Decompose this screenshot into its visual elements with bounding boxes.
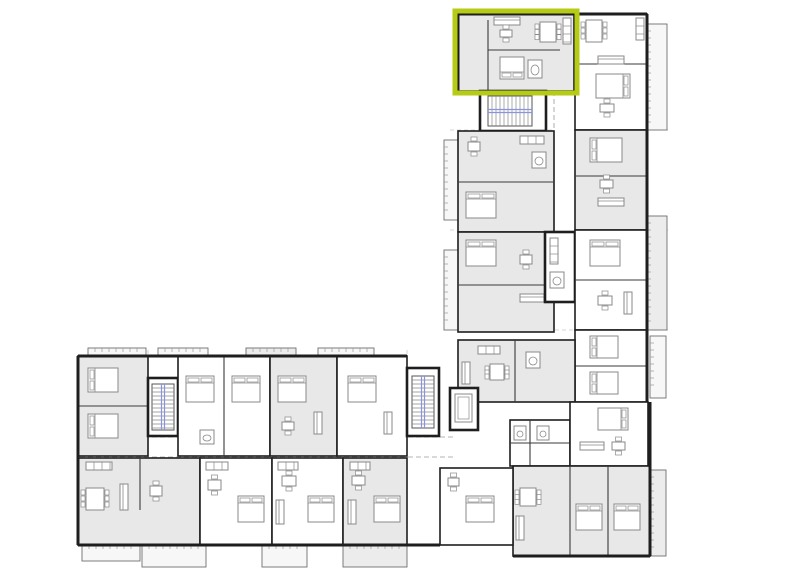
bed-symbol xyxy=(466,496,494,522)
stairs-symbol xyxy=(488,96,532,126)
balcony xyxy=(647,216,667,330)
kitchen-symbol xyxy=(278,462,298,470)
sofa-symbol xyxy=(314,412,322,434)
unit-junction-core[interactable] xyxy=(510,420,570,466)
bath-symbol xyxy=(537,426,549,440)
bed-symbol xyxy=(596,74,630,98)
dining-symbol xyxy=(581,20,607,42)
bed-symbol xyxy=(614,504,640,530)
unit-v-right-2[interactable] xyxy=(575,130,647,230)
core-stair-core-b xyxy=(407,368,439,436)
kitchen-symbol xyxy=(636,18,644,40)
unit-v-left-1[interactable] xyxy=(458,131,554,232)
stairs-symbol xyxy=(152,384,174,430)
balcony xyxy=(343,545,407,567)
bed-symbol xyxy=(466,192,496,218)
unit-bw-top-1[interactable] xyxy=(178,356,270,456)
kitchen-symbol xyxy=(206,462,228,470)
sofa-symbol xyxy=(494,17,520,25)
kitchen-symbol xyxy=(350,462,370,470)
bath-symbol xyxy=(528,60,542,78)
bath-symbol xyxy=(200,430,214,444)
bed-symbol xyxy=(598,408,628,430)
core-elevator-core xyxy=(450,388,478,430)
stairs-symbol xyxy=(412,376,434,428)
corridor xyxy=(554,91,575,232)
bed-symbol xyxy=(238,496,264,522)
unit-junction-right[interactable] xyxy=(513,466,650,556)
bath-symbol xyxy=(526,352,540,368)
unit-bw-bot-2[interactable] xyxy=(272,458,343,545)
sofa-symbol xyxy=(384,412,392,434)
floor-plan xyxy=(0,0,800,575)
dining-symbol xyxy=(535,22,561,42)
sofa-symbol xyxy=(624,292,632,314)
sofa-symbol xyxy=(580,442,604,450)
bath-symbol xyxy=(532,152,546,168)
balcony xyxy=(444,250,458,330)
unit-v-right-4[interactable] xyxy=(575,330,647,402)
sofa-symbol xyxy=(276,500,284,524)
kitchen-symbol xyxy=(550,238,558,264)
core-stair-core-a xyxy=(148,378,178,436)
dining-symbol xyxy=(485,364,509,380)
unit-bw-top-3[interactable] xyxy=(337,356,407,456)
core-core-mid xyxy=(545,232,575,302)
bath-symbol xyxy=(514,426,526,440)
unit-v-right-3[interactable] xyxy=(575,230,647,330)
bed-symbol xyxy=(88,368,118,392)
bed-symbol xyxy=(232,376,260,402)
kitchen-symbol xyxy=(478,346,500,354)
balcony xyxy=(650,470,666,556)
bed-symbol xyxy=(590,372,618,394)
unit-junction-topright[interactable] xyxy=(570,402,648,466)
balcony xyxy=(444,140,458,220)
bed-symbol xyxy=(466,240,496,266)
elevator-symbol xyxy=(455,394,472,422)
unit-bw-bot-3[interactable] xyxy=(343,458,407,545)
sofa-symbol xyxy=(348,500,356,524)
unit-v-left-2[interactable] xyxy=(458,232,554,332)
bed-symbol xyxy=(500,57,524,79)
bath-symbol xyxy=(550,272,564,288)
floor-plan-page xyxy=(0,0,800,575)
balcony xyxy=(647,24,667,130)
unit-bw-bot-corner[interactable] xyxy=(78,458,200,545)
sofa-symbol xyxy=(120,484,128,510)
unit-bw-top-2[interactable] xyxy=(270,356,337,456)
sofa-symbol xyxy=(598,56,624,64)
bed-symbol xyxy=(590,240,620,266)
sofa-symbol xyxy=(516,516,524,540)
bed-symbol xyxy=(348,376,376,402)
bed-symbol xyxy=(88,414,118,438)
unit-bw-top-corner[interactable] xyxy=(78,356,148,456)
balcony xyxy=(82,545,140,561)
bed-symbol xyxy=(590,336,618,358)
sofa-symbol xyxy=(520,294,544,302)
bed-symbol xyxy=(186,376,214,402)
kitchen-symbol xyxy=(86,462,112,470)
dining-symbol xyxy=(81,488,109,510)
unit-bw-bot-1[interactable] xyxy=(200,458,272,545)
balcony xyxy=(142,545,206,567)
unit-highlighted[interactable] xyxy=(458,14,574,91)
kitchen-symbol xyxy=(563,18,571,44)
sofa-symbol xyxy=(462,362,470,384)
bed-symbol xyxy=(308,496,334,522)
unit-v-right-1[interactable] xyxy=(575,14,647,130)
bed-symbol xyxy=(374,496,400,522)
core-stair-core-top xyxy=(480,91,546,131)
unit-junction-mid[interactable] xyxy=(440,468,513,545)
bed-symbol xyxy=(576,504,602,530)
bed-symbol xyxy=(590,138,622,162)
sofa-symbol xyxy=(598,198,624,206)
balcony xyxy=(262,545,307,567)
dining-symbol xyxy=(515,488,541,506)
bed-symbol xyxy=(278,376,306,402)
balcony xyxy=(650,336,666,398)
kitchen-symbol xyxy=(520,136,544,144)
